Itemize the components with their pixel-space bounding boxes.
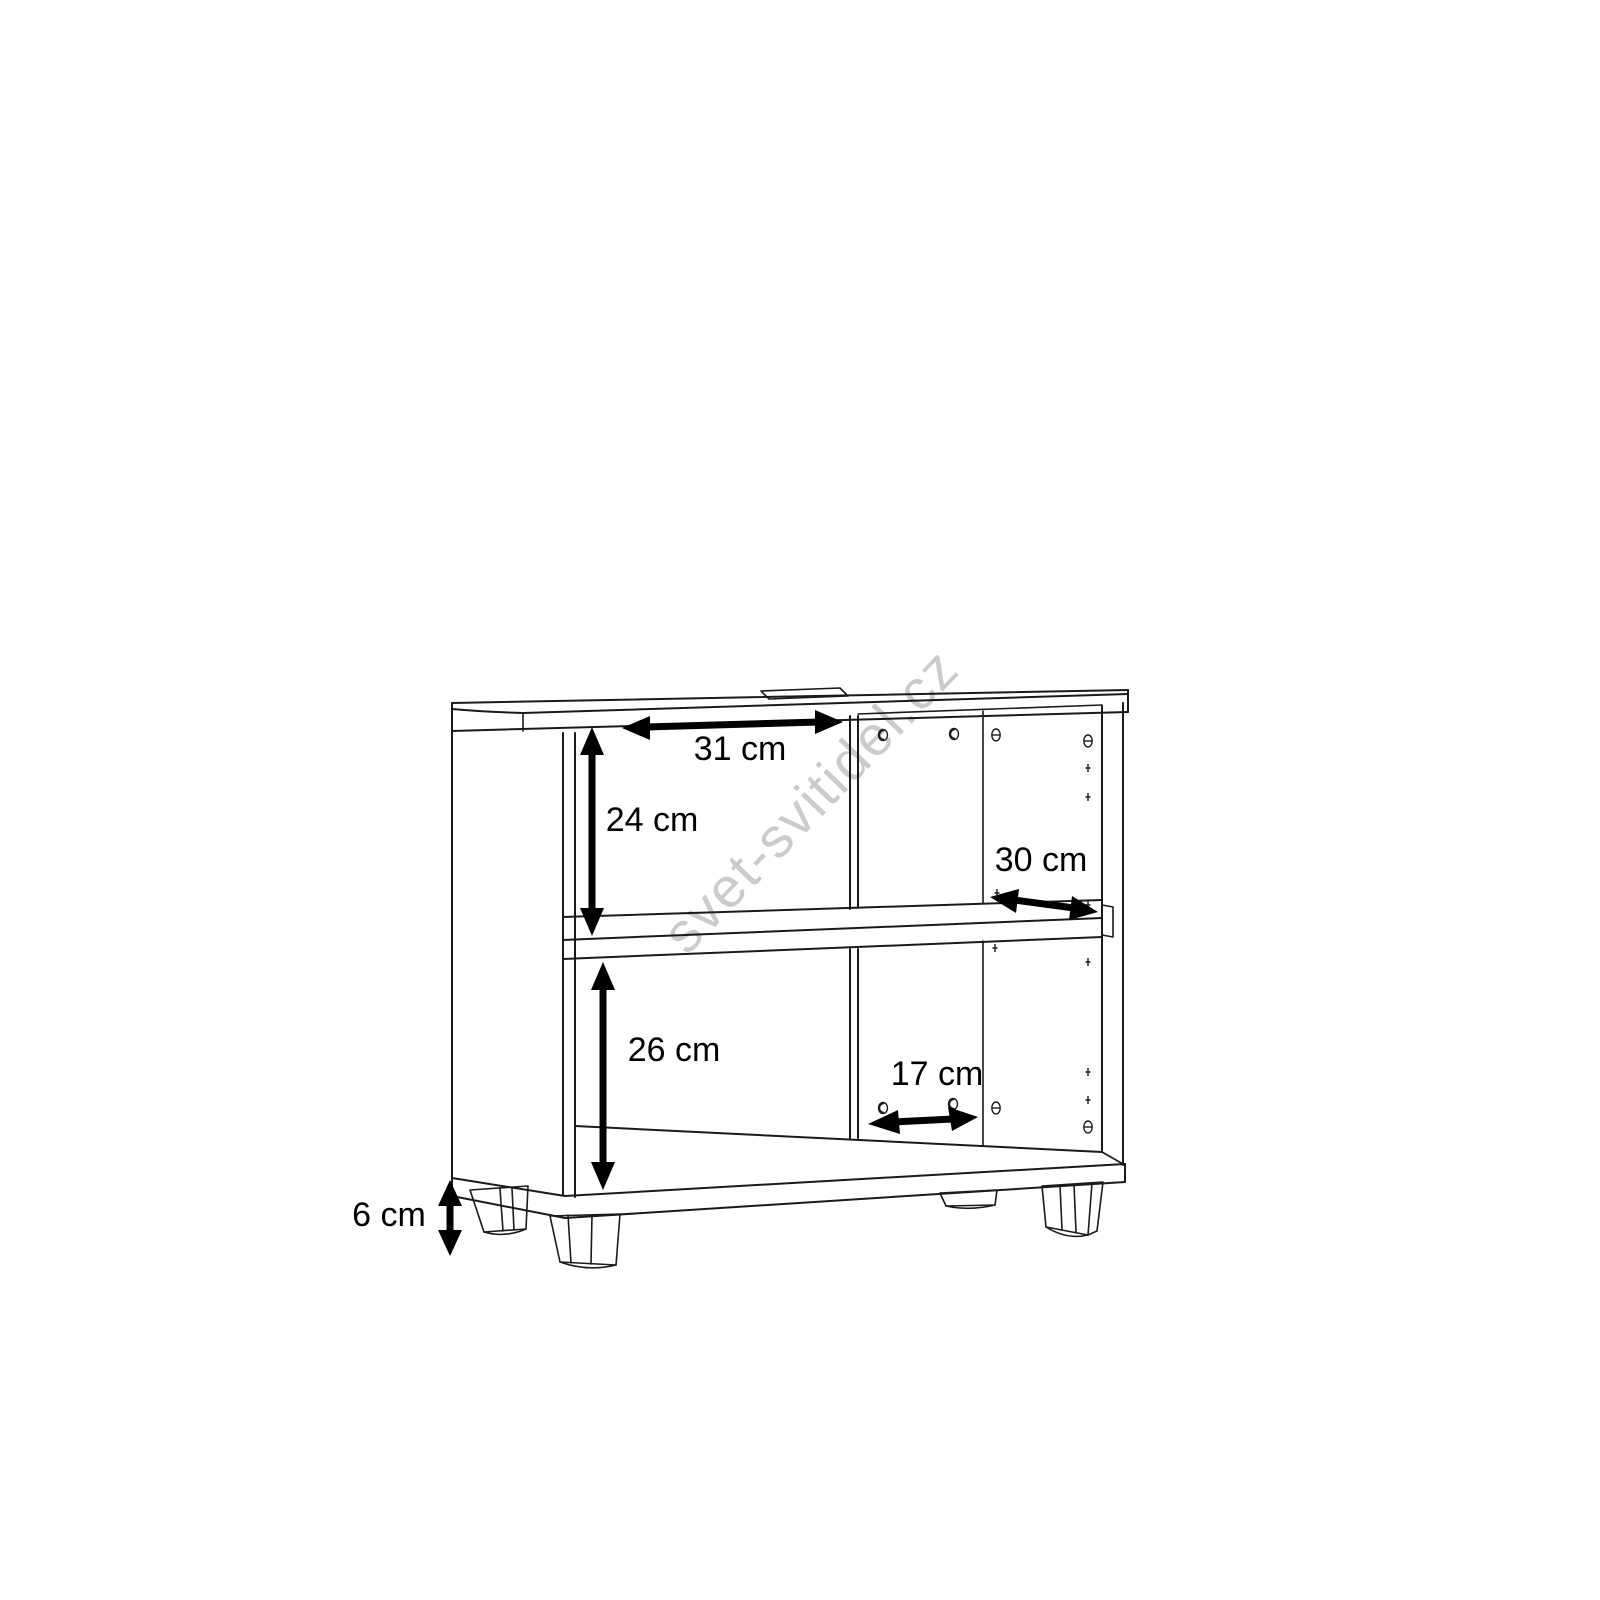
double-arrow-horizontal-icon [868,1107,978,1134]
dimension-label-30cm: 30 cm [995,841,1088,879]
left-side-panel [452,731,575,1197]
double-arrow-vertical-icon [580,727,604,936]
dimension-26cm: 26 cm [591,962,720,1190]
pin-hole [993,764,1091,1104]
dimension-6cm: 6 cm [352,1180,462,1256]
double-arrow-diagonal-icon [990,889,1098,920]
screw-hole [992,729,1092,1133]
cabinet-drawing: svet-svitidel.cz [0,0,1600,1600]
dimension-30cm: 30 cm [990,841,1098,920]
dimension-label-24cm: 24 cm [606,801,699,839]
dimension-label-26cm: 26 cm [628,1031,721,1069]
double-arrow-vertical-icon [438,1180,462,1256]
dimension-label-31cm: 31 cm [694,730,787,768]
furniture-dimension-diagram: svet-svitidel.cz [0,0,1600,1600]
legs [470,1182,1103,1268]
back-left-leg [470,1186,528,1234]
front-right-leg [1042,1182,1103,1236]
front-left-leg [550,1214,620,1268]
dimension-label-17cm: 17 cm [891,1055,984,1093]
double-arrow-vertical-icon [591,962,615,1190]
dimension-label-6cm: 6 cm [352,1196,426,1234]
dimension-17cm: 17 cm [868,1055,983,1134]
bottom-panel [452,1126,1125,1218]
shelf [563,900,1113,959]
